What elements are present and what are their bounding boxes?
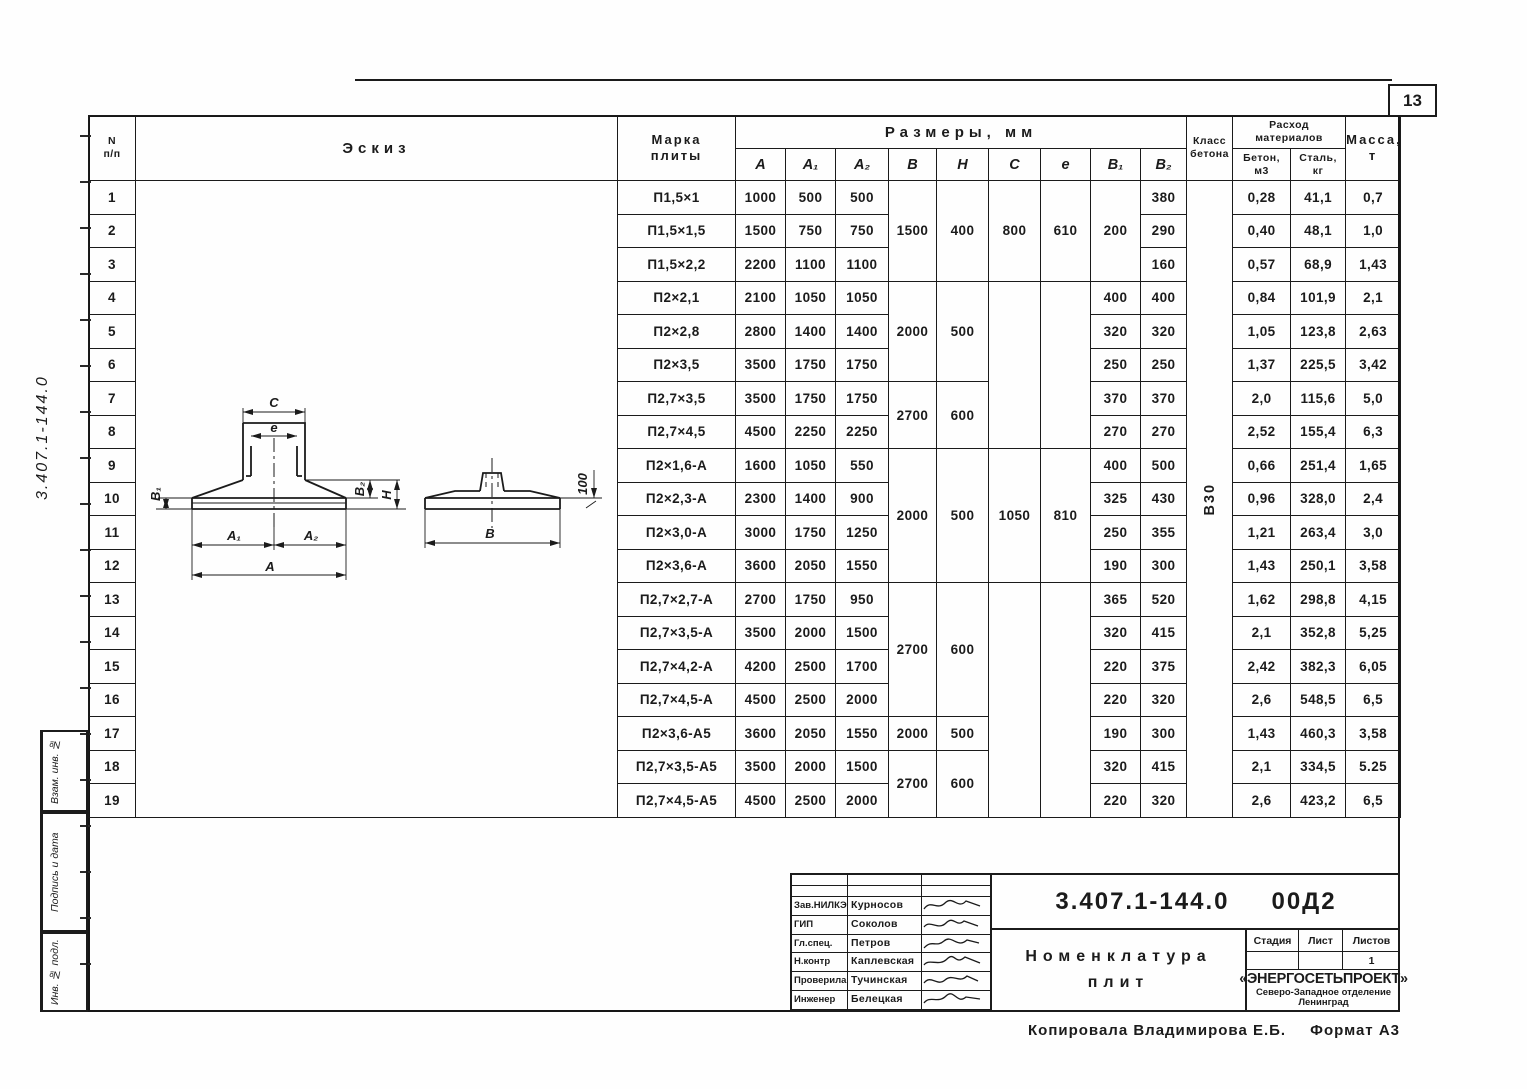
value-cell: 750 (786, 214, 836, 248)
value-cell: 3500 (736, 348, 786, 382)
value-cell: 2050 (786, 549, 836, 583)
signature-scribble (922, 991, 988, 1009)
value-cell: 220 (1091, 650, 1141, 684)
value-cell: 160 (1141, 248, 1187, 282)
value-cell: 900 (836, 482, 889, 516)
value-cell: 548,5 (1291, 683, 1346, 717)
value-cell: 2250 (786, 415, 836, 449)
value-cell (989, 281, 1041, 449)
header-dim-a: A (736, 149, 786, 181)
value-cell: 270 (1141, 415, 1187, 449)
value-cell: 6,3 (1346, 415, 1401, 449)
signature-scribble (922, 916, 988, 934)
value-cell: 3,58 (1346, 717, 1401, 751)
value-cell: 500 (937, 449, 989, 583)
label-b: B (485, 526, 494, 541)
stamp-box-inv: Инв. № подл. (40, 932, 88, 1012)
stage-sheet-block: Стадия Лист Листов 1 «ЭНЕРГОСЕТЬПРОЕКТ» … (1247, 930, 1400, 1010)
header-materials-group: Расход материалов (1233, 116, 1346, 149)
value-cell: 1000 (736, 181, 786, 215)
value-cell: 500 (786, 181, 836, 215)
value-cell: 352,8 (1291, 616, 1346, 650)
value-cell: 1550 (836, 717, 889, 751)
value-cell: 2,4 (1346, 482, 1401, 516)
value-cell: 320 (1141, 784, 1187, 818)
header-num: N п/п (89, 116, 136, 181)
header-num-line1: N (89, 135, 135, 148)
header-mark-line1: Марка (618, 132, 735, 148)
sheet-header: Лист (1299, 930, 1343, 951)
title-block: Зав.НИЛКЭКурносовГИПСоколовГл.спец.Петро… (790, 873, 1400, 1012)
value-cell: 500 (937, 717, 989, 751)
value-cell: 320 (1141, 315, 1187, 349)
row-number: 9 (89, 449, 136, 483)
value-cell: 1,21 (1233, 516, 1291, 550)
value-cell: 334,5 (1291, 750, 1346, 784)
signature-role: Н.контр (792, 953, 848, 971)
label-b1: B₁ (150, 487, 163, 501)
plate-mark: П2×3,6-А (618, 549, 736, 583)
value-cell: 0,96 (1233, 482, 1291, 516)
signature-row: ПроверилаТучинская (792, 972, 990, 991)
value-cell: 520 (1141, 583, 1187, 617)
row-number: 19 (89, 784, 136, 818)
format-label: Формат А3 (1310, 1022, 1400, 1039)
signature-name: Петров (848, 935, 922, 953)
header-mass-line1: Масса, (1346, 132, 1400, 148)
value-cell: 220 (1091, 683, 1141, 717)
value-cell: 400 (1091, 449, 1141, 483)
plate-sketch: C e A₁ A₂ A B₁ B₂ H B 100 (150, 388, 620, 603)
value-cell: 5.25 (1346, 750, 1401, 784)
signature-name: Тучинская (848, 972, 922, 990)
value-cell: 300 (1141, 549, 1187, 583)
value-cell: 2700 (889, 583, 937, 717)
value-cell: 48,1 (1291, 214, 1346, 248)
plate-mark: П1,5×1 (618, 181, 736, 215)
value-cell: 300 (1141, 717, 1187, 751)
header-dim-e: e (1041, 149, 1091, 181)
value-cell: 355 (1141, 516, 1187, 550)
organization-box: «ЭНЕРГОСЕТЬПРОЕКТ» Северо-Западное отдел… (1247, 970, 1400, 1010)
value-cell: 68,9 (1291, 248, 1346, 282)
value-cell: 400 (1141, 281, 1187, 315)
value-cell: 4500 (736, 784, 786, 818)
signature-role: Гл.спец. (792, 935, 848, 953)
label-e: e (270, 420, 277, 435)
value-cell: 101,9 (1291, 281, 1346, 315)
sheets-header: Листов (1343, 930, 1400, 951)
plate-mark: П2,7×3,5-А (618, 616, 736, 650)
value-cell: 225,5 (1291, 348, 1346, 382)
value-cell: 4500 (736, 415, 786, 449)
value-cell: 1750 (786, 348, 836, 382)
header-mark-line2: плиты (618, 148, 735, 164)
stage-header: Стадия (1247, 930, 1299, 951)
header-num-line2: п/п (89, 148, 135, 161)
value-cell: 2700 (736, 583, 786, 617)
value-cell: 270 (1091, 415, 1141, 449)
value-cell: 2,1 (1346, 281, 1401, 315)
value-cell: 950 (836, 583, 889, 617)
row-number: 3 (89, 248, 136, 282)
signature-scribble (922, 897, 988, 915)
plate-mark: П2,7×4,5-А5 (618, 784, 736, 818)
value-cell: 3500 (736, 750, 786, 784)
value-cell: 2,52 (1233, 415, 1291, 449)
organization-city: Ленинград (1298, 998, 1348, 1008)
value-cell: 2000 (786, 750, 836, 784)
value-cell: 3500 (736, 616, 786, 650)
value-cell: 190 (1091, 717, 1141, 751)
side-view-hidden-lines (486, 458, 498, 528)
table-row: 1П1,5×110005005001500400800610200380В300… (89, 181, 1401, 215)
plate-mark: П2×3,5 (618, 348, 736, 382)
value-cell: 400 (1091, 281, 1141, 315)
value-cell: 5,0 (1346, 382, 1401, 416)
value-cell: 325 (1091, 482, 1141, 516)
value-cell: 2200 (736, 248, 786, 282)
header-mark: Марка плиты (618, 116, 736, 181)
value-cell: 2,1 (1233, 750, 1291, 784)
header-steel: Сталь, кг (1291, 149, 1346, 181)
header-materials-line2: материалов (1233, 132, 1345, 145)
value-cell: 250 (1091, 516, 1141, 550)
label-a2: A₂ (303, 528, 318, 543)
signature-grid: Зав.НИЛКЭКурносовГИПСоколовГл.спец.Петро… (792, 875, 992, 1010)
plate-mark: П2,7×4,5-А (618, 683, 736, 717)
plate-mark: П2,7×4,5 (618, 415, 736, 449)
header-dim-c: C (989, 149, 1041, 181)
value-cell: 3,0 (1346, 516, 1401, 550)
value-cell: 1,65 (1346, 449, 1401, 483)
value-cell: 3,42 (1346, 348, 1401, 382)
signature-name: Белецкая (848, 991, 922, 1009)
label-c: C (269, 395, 279, 410)
value-cell: 1400 (786, 315, 836, 349)
signature-scribble (922, 972, 988, 990)
value-cell: 1750 (836, 348, 889, 382)
value-cell (1041, 281, 1091, 449)
value-cell: 0,28 (1233, 181, 1291, 215)
value-cell: 2100 (736, 281, 786, 315)
value-cell: 2,6 (1233, 784, 1291, 818)
signature-role: ГИП (792, 916, 848, 934)
header-steel-line1: Сталь, (1291, 152, 1345, 165)
value-cell: 320 (1141, 683, 1187, 717)
value-cell: 2,42 (1233, 650, 1291, 684)
header-dim-h: H (937, 149, 989, 181)
value-cell: 1250 (836, 516, 889, 550)
value-cell: 4500 (736, 683, 786, 717)
value-cell: 41,1 (1291, 181, 1346, 215)
value-cell: 365 (1091, 583, 1141, 617)
value-cell: 2500 (786, 784, 836, 818)
drawing-sheet: 13 Взам. инв. № Подпись и дата Инв. № по… (0, 0, 1527, 1089)
signature-name: Каплевская (848, 953, 922, 971)
signature-rows: Зав.НИЛКЭКурносовГИПСоколовГл.спец.Петро… (792, 897, 990, 1010)
header-dim-b1: B₁ (1091, 149, 1141, 181)
stamp-box-podpis-label: Подпись и дата (42, 814, 67, 930)
value-cell: 6,5 (1346, 683, 1401, 717)
value-cell: 1700 (836, 650, 889, 684)
footer-note: Копировала Владимирова Е.Б. Формат А3 (1028, 1022, 1400, 1039)
value-cell: 1400 (836, 315, 889, 349)
row-number: 18 (89, 750, 136, 784)
value-cell: 2000 (836, 683, 889, 717)
signature-name: Курносов (848, 897, 922, 915)
row-number: 7 (89, 382, 136, 416)
header-mass: Масса, т (1346, 116, 1401, 181)
plate-mark: П1,5×1,5 (618, 214, 736, 248)
value-cell: 1500 (889, 181, 937, 282)
value-cell: 2000 (889, 281, 937, 382)
row-number: 5 (89, 315, 136, 349)
sheet-number-box: 13 (1388, 84, 1437, 117)
value-cell: 1600 (736, 449, 786, 483)
row-number: 13 (89, 583, 136, 617)
value-cell: 380 (1141, 181, 1187, 215)
plate-mark: П2×2,3-А (618, 482, 736, 516)
value-cell: 250 (1091, 348, 1141, 382)
doc-number: 3.407.1-144.0 (1055, 888, 1229, 916)
stamp-box-vzam-label: Взам. инв. № (42, 732, 67, 810)
sheets-value: 1 (1343, 952, 1400, 969)
value-cell: 375 (1141, 650, 1187, 684)
stamp-box-inv-label: Инв. № подл. (42, 934, 67, 1010)
value-cell: 2250 (836, 415, 889, 449)
value-cell: 550 (836, 449, 889, 483)
value-cell (1041, 583, 1091, 818)
value-cell: 600 (937, 750, 989, 817)
value-cell: В30 (1187, 181, 1233, 818)
label-a: A (264, 559, 274, 574)
value-cell: 0,7 (1346, 181, 1401, 215)
value-cell: 600 (937, 382, 989, 449)
value-cell: 810 (1041, 449, 1091, 583)
row-number: 2 (89, 214, 136, 248)
value-cell: 250,1 (1291, 549, 1346, 583)
value-cell: 2300 (736, 482, 786, 516)
value-cell: 500 (836, 181, 889, 215)
organization-name: «ЭНЕРГОСЕТЬПРОЕКТ» (1239, 972, 1408, 988)
handwritten-doc-code: 3.407.1-144.0 (34, 360, 52, 500)
value-cell: 190 (1091, 549, 1141, 583)
header-concrete: Бетон, м3 (1233, 149, 1291, 181)
value-cell: 1500 (736, 214, 786, 248)
value-cell: 1750 (786, 516, 836, 550)
value-cell: 5,25 (1346, 616, 1401, 650)
value-cell: 0,66 (1233, 449, 1291, 483)
value-cell: 320 (1091, 616, 1141, 650)
header-concrete-class: Класс бетона (1187, 116, 1233, 181)
value-cell: 460,3 (1291, 717, 1346, 751)
plate-mark: П2,7×3,5 (618, 382, 736, 416)
value-cell: 3000 (736, 516, 786, 550)
value-cell: 1550 (836, 549, 889, 583)
value-cell: 3600 (736, 717, 786, 751)
signature-role: Инженер (792, 991, 848, 1009)
value-cell: 2700 (889, 750, 937, 817)
value-cell: 200 (1091, 181, 1141, 282)
header-dim-b2: B₂ (1141, 149, 1187, 181)
label-a1: A₁ (226, 528, 241, 543)
value-cell: 1050 (786, 449, 836, 483)
value-cell: 6,5 (1346, 784, 1401, 818)
value-cell: 2500 (786, 650, 836, 684)
header-concrete-line2: м3 (1233, 165, 1290, 178)
signature-row: ИнженерБелецкая (792, 991, 990, 1010)
header-sketch: Эскиз (136, 116, 618, 181)
value-cell: 1100 (836, 248, 889, 282)
front-dimensions (156, 408, 406, 580)
sheet-value (1299, 952, 1343, 969)
value-cell: 123,8 (1291, 315, 1346, 349)
value-cell: 2000 (889, 717, 937, 751)
drawing-title-line2: плит (1088, 974, 1150, 992)
value-cell: 1500 (836, 750, 889, 784)
value-cell: 2,0 (1233, 382, 1291, 416)
header-materials-line1: Расход (1233, 119, 1345, 132)
signature-row: Н.контрКаплевская (792, 953, 990, 972)
value-cell: 1,37 (1233, 348, 1291, 382)
value-cell: 115,6 (1291, 382, 1346, 416)
value-cell: 263,4 (1291, 516, 1346, 550)
value-cell: 500 (937, 281, 989, 382)
value-cell: 320 (1091, 315, 1141, 349)
stage-values: 1 (1247, 952, 1400, 970)
value-cell: 1400 (786, 482, 836, 516)
header-dim-b: B (889, 149, 937, 181)
row-number: 11 (89, 516, 136, 550)
plate-mark: П2×1,6-А (618, 449, 736, 483)
drawing-title-line1: Номенклатура (1025, 948, 1211, 966)
value-cell: 2,1 (1233, 616, 1291, 650)
header-dim-a1: A₁ (786, 149, 836, 181)
signature-role: Проверила (792, 972, 848, 990)
value-cell: 1050 (836, 281, 889, 315)
header-mass-line2: т (1346, 148, 1400, 164)
header-dim-a2: A₂ (836, 149, 889, 181)
value-cell: 1,0 (1346, 214, 1401, 248)
plate-mark: П1,5×2,2 (618, 248, 736, 282)
row-number: 17 (89, 717, 136, 751)
value-cell: 251,4 (1291, 449, 1346, 483)
row-number: 1 (89, 181, 136, 215)
value-cell: 2000 (836, 784, 889, 818)
value-cell: 1,05 (1233, 315, 1291, 349)
signature-row: ГИПСоколов (792, 916, 990, 935)
row-number: 8 (89, 415, 136, 449)
value-cell: 370 (1091, 382, 1141, 416)
stamp-box-vzam: Взам. инв. № (40, 730, 88, 812)
header-dimensions-group: Размеры, мм (736, 116, 1187, 149)
header-class-line1: Класс (1187, 135, 1232, 148)
plate-mark: П2,7×2,7-А (618, 583, 736, 617)
header-concrete-line1: Бетон, (1233, 152, 1290, 165)
value-cell: 4,15 (1346, 583, 1401, 617)
value-cell: 2500 (786, 683, 836, 717)
value-cell: 250 (1141, 348, 1187, 382)
value-cell: 2,6 (1233, 683, 1291, 717)
signature-row: Зав.НИЛКЭКурносов (792, 897, 990, 916)
signature-name: Соколов (848, 916, 922, 934)
label-b2: B₂ (352, 482, 367, 496)
label-h: H (379, 490, 394, 500)
header-class-line2: бетона (1187, 148, 1232, 161)
value-cell: 1750 (786, 382, 836, 416)
value-cell: 3500 (736, 382, 786, 416)
doc-suffix: 00Д2 (1271, 888, 1336, 916)
value-cell: 1750 (836, 382, 889, 416)
stage-headers: Стадия Лист Листов (1247, 930, 1400, 952)
row-number: 15 (89, 650, 136, 684)
value-cell: 290 (1141, 214, 1187, 248)
value-cell: 298,8 (1291, 583, 1346, 617)
value-cell: 3600 (736, 549, 786, 583)
copied-by: Копировала Владимирова Е.Б. (1028, 1022, 1286, 1039)
value-cell: 1500 (836, 616, 889, 650)
sheet-number: 13 (1403, 91, 1422, 111)
row-number: 14 (89, 616, 136, 650)
value-cell: 750 (836, 214, 889, 248)
row-number: 12 (89, 549, 136, 583)
plate-mark: П2,7×4,2-А (618, 650, 736, 684)
value-cell: 2700 (889, 382, 937, 449)
value-cell: 1750 (786, 583, 836, 617)
value-cell: 1100 (786, 248, 836, 282)
value-cell: 370 (1141, 382, 1187, 416)
plate-mark: П2×3,0-А (618, 516, 736, 550)
value-cell: 220 (1091, 784, 1141, 818)
row-number: 16 (89, 683, 136, 717)
value-cell: 0,40 (1233, 214, 1291, 248)
drawing-title: Номенклатура плит (992, 930, 1247, 1010)
signature-role: Зав.НИЛКЭ (792, 897, 848, 915)
stage-value (1247, 952, 1299, 969)
value-cell: 1,43 (1233, 549, 1291, 583)
value-cell: 610 (1041, 181, 1091, 282)
value-cell: 3,58 (1346, 549, 1401, 583)
plate-mark: П2×3,6-А5 (618, 717, 736, 751)
value-cell: 600 (937, 583, 989, 717)
row-number: 4 (89, 281, 136, 315)
value-cell: 320 (1091, 750, 1141, 784)
plate-mark: П2×2,8 (618, 315, 736, 349)
value-cell: 430 (1141, 482, 1187, 516)
row-number: 10 (89, 482, 136, 516)
row-number: 6 (89, 348, 136, 382)
value-cell: 4200 (736, 650, 786, 684)
label-100: 100 (575, 472, 590, 494)
header-steel-line2: кг (1291, 165, 1345, 178)
value-cell: 1,43 (1233, 717, 1291, 751)
plate-mark: П2×2,1 (618, 281, 736, 315)
value-cell: 415 (1141, 616, 1187, 650)
value-cell: 6,05 (1346, 650, 1401, 684)
plate-mark: П2,7×3,5-А5 (618, 750, 736, 784)
value-cell: 500 (1141, 449, 1187, 483)
value-cell: 1050 (989, 449, 1041, 583)
value-cell: 1,62 (1233, 583, 1291, 617)
value-cell: 415 (1141, 750, 1187, 784)
value-cell: 2,63 (1346, 315, 1401, 349)
value-cell: 328,0 (1291, 482, 1346, 516)
value-cell: 2000 (889, 449, 937, 583)
signature-scribble (922, 935, 988, 953)
value-cell: 1050 (786, 281, 836, 315)
value-cell: 1,43 (1346, 248, 1401, 282)
